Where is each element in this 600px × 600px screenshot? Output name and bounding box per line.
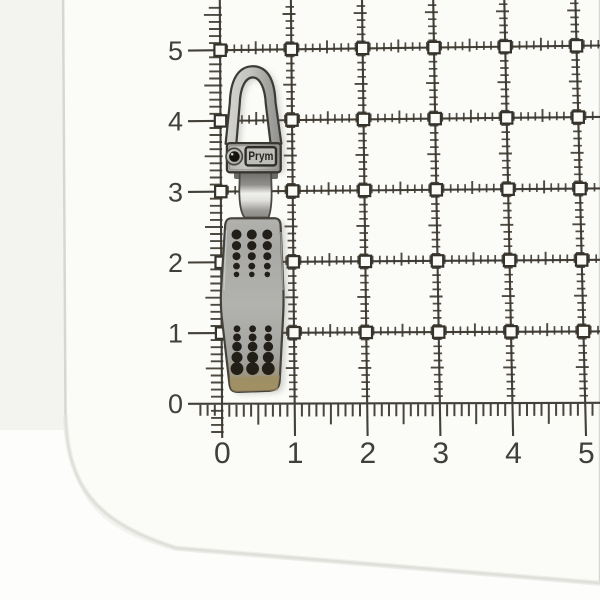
svg-text:0: 0 <box>214 437 231 470</box>
svg-text:5: 5 <box>578 437 595 470</box>
svg-text:0: 0 <box>168 389 183 419</box>
svg-text:5: 5 <box>168 36 183 66</box>
svg-text:3: 3 <box>168 177 183 207</box>
svg-text:2: 2 <box>168 248 183 278</box>
svg-text:1: 1 <box>168 319 183 349</box>
svg-text:Prym: Prym <box>248 151 273 163</box>
svg-text:3: 3 <box>432 437 449 470</box>
svg-text:4: 4 <box>505 437 522 470</box>
svg-text:4: 4 <box>168 107 183 137</box>
svg-text:1: 1 <box>287 437 304 470</box>
svg-text:2: 2 <box>360 437 377 470</box>
